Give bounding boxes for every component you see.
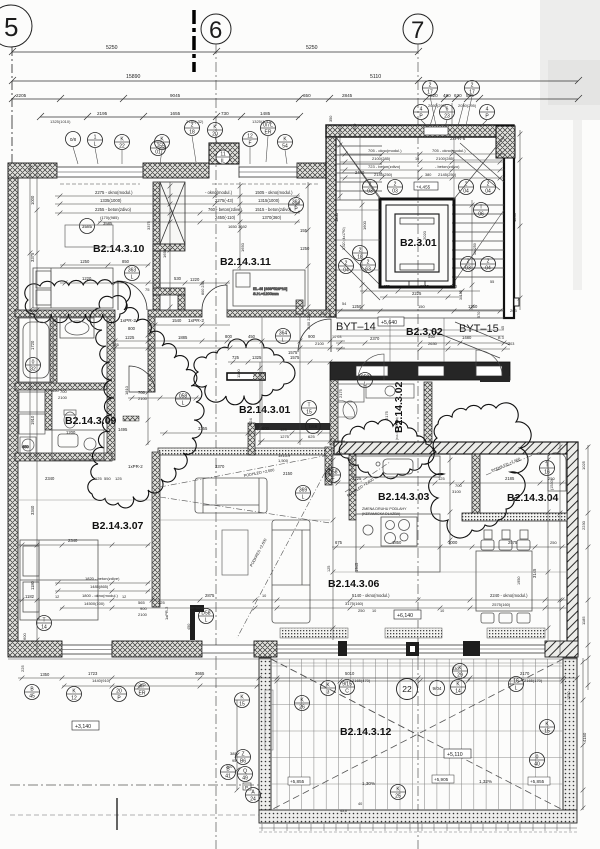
svg-text:41: 41 — [225, 774, 231, 780]
svg-text:F: F — [248, 141, 251, 147]
svg-text:385: 385 — [230, 751, 237, 756]
svg-text:7: 7 — [411, 17, 424, 44]
svg-text:3x185: 3x185 — [459, 290, 463, 300]
svg-text:705 - okno(modul.): 705 - okno(modul.) — [432, 148, 466, 153]
svg-text:ER: ER — [139, 691, 146, 697]
svg-text:12: 12 — [71, 696, 77, 702]
svg-text:+5,855: +5,855 — [290, 779, 305, 784]
svg-text:450: 450 — [52, 388, 59, 393]
svg-text:725: 725 — [232, 355, 240, 360]
svg-text:125: 125 — [327, 566, 331, 572]
svg-text:14500(100): 14500(100) — [84, 601, 105, 606]
svg-text:2370: 2370 — [370, 336, 380, 341]
svg-text:B 3: B 3 — [498, 336, 504, 340]
svg-text:15890: 15890 — [126, 74, 141, 80]
svg-text:2225: 2225 — [412, 291, 422, 296]
svg-text:1720: 1720 — [30, 340, 35, 350]
svg-text:330: 330 — [452, 666, 459, 671]
svg-text:450: 450 — [187, 624, 191, 630]
svg-text:9045: 9045 — [170, 93, 181, 98]
svg-text:B2.14.3.12: B2.14.3.12 — [340, 726, 392, 738]
svg-text:2100: 2100 — [138, 396, 148, 401]
svg-text:2630: 2630 — [428, 341, 438, 346]
svg-text:BYT–14: BYT–14 — [336, 321, 376, 333]
svg-text:2255 - beton(zdivo): 2255 - beton(zdivo) — [95, 207, 132, 212]
svg-text:700: 700 — [60, 389, 67, 394]
svg-text:L: L — [182, 401, 185, 407]
svg-text:5010: 5010 — [345, 671, 355, 676]
svg-text:14: 14 — [455, 689, 461, 695]
svg-text:26: 26 — [299, 705, 305, 711]
svg-text:1: 1 — [94, 135, 97, 141]
svg-text:2xPR-6: 2xPR-6 — [450, 136, 466, 141]
svg-text:3665: 3665 — [195, 671, 205, 676]
svg-text:1335(1000): 1335(1000) — [100, 198, 122, 203]
svg-text:550: 550 — [428, 334, 436, 339]
svg-text:1910: 1910 — [30, 415, 35, 425]
svg-text:ZMENA DRUHU PODLAHY: ZMENA DRUHU PODLAHY — [362, 507, 407, 511]
svg-text:2165(170): 2165(170) — [524, 678, 543, 683]
svg-text:550: 550 — [104, 476, 111, 481]
svg-text:650: 650 — [303, 93, 311, 98]
svg-text:125: 125 — [112, 342, 119, 347]
svg-text:0/7L: 0/7L — [263, 123, 273, 129]
svg-text:2050(295): 2050(295) — [458, 103, 477, 108]
svg-text:1025: 1025 — [581, 460, 586, 470]
svg-text:364: 364 — [279, 331, 288, 337]
svg-text:B2.14.3.06: B2.14.3.06 — [328, 578, 380, 590]
svg-text:2175: 2175 — [384, 410, 389, 420]
svg-text:(170)(985): (170)(985) — [100, 215, 119, 220]
svg-text:723 - beton(zdivo): 723 - beton(zdivo) — [368, 164, 401, 169]
svg-text:3725: 3725 — [352, 476, 362, 481]
svg-text:B2.14.3.10: B2.14.3.10 — [93, 243, 145, 255]
svg-text:200: 200 — [353, 124, 357, 130]
svg-text:10 03: 10 03 — [332, 335, 342, 339]
svg-text:6: 6 — [446, 107, 449, 113]
svg-text:01: 01 — [155, 150, 161, 156]
svg-text:40: 40 — [358, 802, 362, 806]
svg-text:+3,140: +3,140 — [75, 724, 91, 730]
svg-text:6: 6 — [209, 17, 222, 44]
svg-text:10: 10 — [440, 609, 444, 613]
svg-text:2240 - okno(modul.): 2240 - okno(modul.) — [490, 593, 528, 598]
svg-text:04: 04 — [463, 189, 469, 195]
svg-text:1505 - okno(modul.): 1505 - okno(modul.) — [255, 190, 293, 195]
svg-text:700: 700 — [138, 390, 146, 395]
svg-text:12: 12 — [247, 134, 253, 140]
svg-text:L: L — [94, 142, 97, 148]
svg-text:L: L — [302, 495, 305, 501]
svg-text:1180: 1180 — [30, 580, 35, 590]
svg-text:0: 0 — [32, 360, 35, 366]
svg-text:29: 29 — [457, 673, 463, 679]
svg-text:2170: 2170 — [520, 671, 530, 676]
svg-text:225: 225 — [20, 665, 25, 672]
svg-text:2: 2 — [359, 248, 362, 254]
svg-text:1950: 1950 — [517, 577, 521, 585]
svg-text:16: 16 — [513, 679, 519, 685]
svg-text:- okno(modul.): - okno(modul.) — [205, 190, 233, 195]
svg-text:1,32%: 1,32% — [479, 779, 492, 784]
svg-text:15: 15 — [239, 702, 245, 708]
svg-text:3145: 3145 — [532, 568, 537, 578]
svg-text:5110: 5110 — [370, 74, 381, 80]
svg-text:3375: 3375 — [30, 252, 35, 262]
svg-text:1515 - beton(zdivo): 1515 - beton(zdivo) — [255, 207, 292, 212]
svg-text:54: 54 — [342, 302, 346, 306]
svg-text:250: 250 — [550, 540, 557, 545]
svg-text:1885: 1885 — [178, 335, 188, 340]
svg-text:14: 14 — [41, 625, 47, 631]
svg-text:1250: 1250 — [468, 304, 478, 309]
svg-text:+4,455: +4,455 — [416, 185, 431, 190]
svg-text:2: 2 — [487, 259, 490, 265]
svg-text:1655: 1655 — [170, 111, 181, 116]
svg-text:1xPR-2: 1xPR-2 — [188, 318, 204, 324]
svg-text:3585: 3585 — [103, 221, 113, 226]
svg-text:B2.14.3.07: B2.14.3.07 — [92, 520, 144, 532]
svg-text:1485: 1485 — [260, 111, 271, 116]
svg-text:2575(160): 2575(160) — [492, 602, 511, 607]
svg-text:730: 730 — [221, 111, 229, 116]
svg-text:125: 125 — [280, 427, 287, 432]
svg-text:11: 11 — [220, 152, 225, 158]
svg-text:203: 203 — [508, 342, 514, 346]
svg-text:1723: 1723 — [88, 671, 98, 676]
svg-text:2: 2 — [367, 260, 370, 266]
svg-text:058: 058 — [179, 394, 188, 400]
svg-text:760 - beton(zdive): 760 - beton(zdive) — [208, 207, 242, 212]
svg-text:1,500: 1,500 — [278, 458, 289, 463]
svg-text:125: 125 — [438, 476, 445, 481]
svg-text:620: 620 — [454, 93, 462, 98]
svg-text:+6,140: +6,140 — [397, 613, 413, 619]
svg-text:04: 04 — [485, 266, 491, 272]
svg-text:2875: 2875 — [205, 593, 215, 598]
svg-text:1000: 1000 — [30, 195, 35, 205]
svg-text:530: 530 — [174, 276, 182, 281]
svg-text:15: 15 — [306, 410, 312, 416]
svg-text:L: L — [205, 618, 208, 624]
svg-text:2185: 2185 — [505, 476, 515, 481]
svg-text:675: 675 — [335, 540, 343, 545]
svg-text:04: 04 — [485, 189, 491, 195]
svg-text:5250: 5250 — [106, 45, 118, 51]
svg-text:058: 058 — [361, 375, 370, 381]
svg-text:1650: 1650 — [162, 248, 167, 258]
svg-text:1100 2250: 1100 2250 — [307, 312, 311, 330]
svg-text:1160: 1160 — [420, 284, 430, 289]
svg-text:1315(1000): 1315(1000) — [258, 198, 280, 203]
svg-text:850: 850 — [122, 259, 130, 264]
svg-text:2: 2 — [429, 83, 432, 89]
svg-text:10: 10 — [262, 594, 266, 598]
svg-text:2100(285): 2100(285) — [372, 156, 391, 161]
svg-text:1000: 1000 — [448, 540, 458, 545]
svg-text:03: 03 — [392, 189, 398, 195]
svg-text:0: 0 — [536, 755, 539, 761]
svg-text:B2.14.3.09: B2.14.3.09 — [65, 415, 117, 427]
svg-text:1100: 1100 — [236, 369, 241, 378]
svg-text:C: C — [345, 689, 349, 695]
svg-text:125: 125 — [115, 476, 122, 481]
svg-text:2145(250): 2145(250) — [374, 172, 393, 177]
svg-text:04: 04 — [343, 268, 349, 274]
svg-text:12: 12 — [122, 595, 126, 599]
svg-text:2020: 2020 — [422, 230, 427, 240]
svg-text:49: 49 — [242, 776, 248, 782]
svg-text:3100: 3100 — [452, 489, 462, 494]
svg-text:5: 5 — [4, 12, 18, 42]
svg-text:2175: 2175 — [338, 388, 343, 398]
svg-text:1850: 1850 — [392, 540, 402, 545]
svg-text:45: 45 — [501, 326, 505, 330]
svg-text:L: L — [515, 686, 518, 692]
svg-text:2165(470): 2165(470) — [352, 678, 371, 683]
svg-text:1182: 1182 — [25, 594, 35, 599]
svg-text:900: 900 — [30, 308, 37, 313]
svg-text:363: 363 — [128, 268, 137, 274]
svg-text:16: 16 — [544, 470, 550, 476]
svg-text:100: 100 — [193, 606, 197, 612]
svg-text:4: 4 — [486, 107, 489, 113]
svg-text:3370: 3370 — [215, 464, 225, 469]
svg-text:1350: 1350 — [40, 672, 50, 677]
svg-text:12: 12 — [55, 595, 59, 599]
svg-text:03: 03 — [367, 189, 373, 195]
svg-text:20: 20 — [212, 132, 218, 138]
svg-text:1650: 1650 — [240, 242, 245, 252]
svg-text:624: 624 — [248, 418, 253, 425]
svg-text:250: 250 — [358, 608, 365, 613]
svg-text:2: 2 — [394, 182, 397, 188]
svg-text:1325(1010): 1325(1010) — [50, 119, 71, 124]
svg-text:T: T — [307, 403, 310, 409]
svg-text:D58: D58 — [309, 424, 318, 429]
svg-text:3375: 3375 — [146, 220, 151, 230]
svg-text:10x250: 10x250 — [473, 243, 477, 255]
svg-text:63: 63 — [365, 267, 371, 273]
svg-text:203: 203 — [510, 308, 517, 313]
svg-text:03: 03 — [465, 266, 471, 272]
svg-text:5250: 5250 — [306, 45, 318, 51]
svg-text:1945: 1945 — [354, 562, 359, 572]
svg-text:625: 625 — [308, 434, 315, 439]
svg-text:5140 - okno(modul.): 5140 - okno(modul.) — [352, 593, 390, 598]
svg-text:2: 2 — [471, 83, 474, 89]
svg-text:1: 1 — [157, 143, 160, 149]
svg-text:06: 06 — [478, 212, 484, 218]
svg-text:203: 203 — [320, 311, 327, 316]
svg-text:230: 230 — [450, 284, 458, 289]
svg-text:4: 4 — [420, 107, 423, 113]
svg-text:2205: 2205 — [16, 93, 27, 98]
svg-text:3175(160): 3175(160) — [345, 601, 364, 606]
svg-text:L: L — [131, 275, 134, 281]
svg-text:2: 2 — [191, 123, 194, 129]
svg-text:2100(285): 2100(285) — [436, 156, 455, 161]
svg-text:ER: ER — [265, 130, 272, 136]
svg-text:1820 - beton(zdive): 1820 - beton(zdive) — [85, 576, 120, 581]
svg-text:2: 2 — [487, 182, 490, 188]
svg-text:1220: 1220 — [82, 276, 92, 281]
svg-text:125: 125 — [158, 600, 165, 605]
svg-text:D58: D58 — [201, 611, 210, 617]
svg-text:22: 22 — [119, 144, 125, 150]
svg-text:17: 17 — [427, 90, 433, 96]
svg-text:1xPR-2: 1xPR-2 — [128, 464, 143, 469]
svg-text:17: 17 — [469, 90, 475, 96]
svg-text:2275(-43): 2275(-43) — [215, 198, 234, 203]
svg-text:9/04: 9/04 — [433, 686, 442, 691]
svg-text:1275: 1275 — [280, 434, 290, 439]
svg-text:- beton(zdivo): - beton(zdivo) — [435, 164, 460, 169]
svg-text:800: 800 — [225, 334, 233, 339]
svg-text:9/15: 9/15 — [342, 682, 352, 688]
svg-text:1370(360): 1370(360) — [262, 215, 282, 220]
svg-text:4150: 4150 — [582, 732, 587, 742]
svg-text:1185: 1185 — [581, 616, 586, 625]
svg-text:+5,855: +5,855 — [530, 779, 545, 784]
svg-text:350: 350 — [329, 116, 333, 122]
svg-text:(v.o.=1745mm): (v.o.=1745mm) — [395, 417, 399, 440]
svg-text:1810: 1810 — [124, 385, 129, 395]
svg-text:32: 32 — [30, 367, 36, 373]
svg-text:1440(910): 1440(910) — [92, 678, 111, 683]
svg-text:0/8: 0/8 — [70, 137, 77, 142]
svg-text:2: 2 — [467, 259, 470, 265]
svg-text:1,30%: 1,30% — [362, 781, 375, 786]
svg-text:40: 40 — [534, 762, 540, 768]
svg-text:2195: 2195 — [97, 111, 108, 116]
svg-text:155: 155 — [300, 228, 308, 233]
svg-text:2100: 2100 — [58, 395, 68, 400]
svg-text:480: 480 — [443, 93, 451, 98]
svg-text:+5,110: +5,110 — [447, 752, 463, 758]
svg-text:B2.3.01: B2.3.01 — [400, 237, 437, 249]
svg-text:+5,905: +5,905 — [434, 777, 449, 782]
svg-text:800 230: 800 230 — [201, 281, 205, 295]
svg-text:800: 800 — [128, 326, 136, 331]
svg-text:B6: B6 — [240, 759, 246, 765]
svg-text:600: 600 — [262, 426, 270, 431]
svg-text:3,520 (4x1790): 3,520 (4x1790) — [342, 227, 346, 250]
svg-text:900: 900 — [308, 334, 316, 339]
svg-text:18: 18 — [189, 130, 195, 136]
svg-text:1540: 1540 — [172, 318, 182, 323]
svg-text:(KERAMICKA DLAZBA): (KERAMICKA DLAZBA) — [362, 512, 400, 516]
svg-text:25: 25 — [395, 794, 401, 800]
svg-text:20: 20 — [116, 689, 122, 695]
svg-text:369: 369 — [299, 488, 308, 494]
svg-text:10: 10 — [415, 157, 419, 161]
svg-text:2845: 2845 — [342, 93, 353, 98]
svg-text:565: 565 — [138, 600, 145, 605]
svg-text:150: 150 — [418, 304, 425, 309]
svg-text:S.H.=1200mm: S.H.=1200mm — [253, 291, 279, 296]
svg-text:95: 95 — [232, 759, 236, 763]
svg-text:1250: 1250 — [80, 259, 90, 264]
svg-text:1800 - okno(modul.): 1800 - okno(modul.) — [82, 593, 118, 598]
svg-text:1495: 1495 — [118, 427, 128, 432]
svg-text:1250: 1250 — [352, 304, 362, 309]
svg-text:700: 700 — [455, 483, 462, 488]
svg-text:1575: 1575 — [290, 355, 300, 360]
svg-text:2230: 2230 — [581, 520, 586, 530]
svg-text:125: 125 — [95, 476, 102, 481]
svg-text:570: 570 — [477, 312, 481, 318]
svg-text:200: 200 — [226, 765, 232, 769]
svg-text:3340: 3340 — [30, 505, 35, 515]
svg-text:2100: 2100 — [138, 612, 148, 617]
svg-text:T: T — [479, 205, 482, 211]
svg-text:(1530): (1530) — [550, 478, 554, 490]
svg-text:1650 3692: 1650 3692 — [228, 224, 248, 229]
svg-text:P: P — [245, 785, 248, 790]
svg-text:Q: Q — [243, 769, 247, 775]
svg-text:1250: 1250 — [300, 246, 310, 251]
svg-text:1200: 1200 — [66, 430, 76, 435]
svg-text:1800: 1800 — [512, 212, 517, 222]
svg-text:3355: 3355 — [198, 426, 208, 431]
svg-text:15: 15 — [544, 729, 550, 735]
svg-text:380: 380 — [425, 173, 431, 177]
svg-text:22: 22 — [402, 684, 412, 694]
svg-text:T: T — [42, 618, 45, 624]
svg-text:450: 450 — [22, 444, 29, 449]
svg-text:705 - okno(modul.): 705 - okno(modul.) — [368, 148, 402, 153]
svg-text:24: 24 — [250, 797, 256, 803]
svg-text:L: L — [282, 338, 285, 344]
svg-text:1220: 1220 — [190, 277, 200, 282]
svg-text:2340: 2340 — [68, 538, 78, 543]
svg-text:B2.14.3.11: B2.14.3.11 — [220, 256, 271, 268]
svg-text:2450(-110): 2450(-110) — [215, 215, 236, 220]
svg-text:1485(865): 1485(865) — [90, 584, 109, 589]
svg-text:1xPR-2: 1xPR-2 — [120, 318, 136, 324]
svg-text:IL: IL — [221, 159, 225, 165]
svg-text:1225: 1225 — [125, 335, 135, 340]
svg-text:2100: 2100 — [315, 341, 325, 346]
svg-text:45: 45 — [29, 694, 35, 700]
svg-text:Z: Z — [241, 752, 244, 758]
svg-text:54: 54 — [282, 144, 288, 150]
svg-text:2575: 2575 — [508, 540, 518, 545]
svg-text:1600: 1600 — [362, 220, 367, 230]
svg-text:45,0: 45,0 — [340, 809, 347, 813]
svg-text:B2.14.3.03: B2.14.3.03 — [378, 491, 430, 503]
svg-text:2340: 2340 — [45, 476, 55, 481]
svg-text:BYT–15: BYT–15 — [459, 323, 499, 335]
svg-text:1800: 1800 — [334, 212, 339, 222]
svg-text:10: 10 — [372, 609, 376, 613]
svg-text:75: 75 — [145, 287, 150, 292]
svg-text:2275 - okno(modul.): 2275 - okno(modul.) — [95, 190, 133, 195]
svg-text:450: 450 — [248, 334, 256, 339]
svg-text:900: 900 — [140, 606, 147, 611]
svg-text:2150: 2150 — [283, 471, 293, 476]
svg-text:23: 23 — [444, 114, 450, 120]
svg-text:1xPR-2: 1xPR-2 — [164, 606, 169, 620]
svg-text:1250: 1250 — [567, 692, 571, 700]
svg-text:600: 600 — [22, 633, 27, 640]
svg-text:B2.14.3.01: B2.14.3.01 — [239, 404, 291, 416]
svg-text:470: 470 — [383, 284, 391, 289]
svg-text:55: 55 — [490, 280, 494, 284]
svg-text:3: 3 — [327, 690, 330, 696]
svg-text:+5,640: +5,640 — [381, 320, 397, 326]
